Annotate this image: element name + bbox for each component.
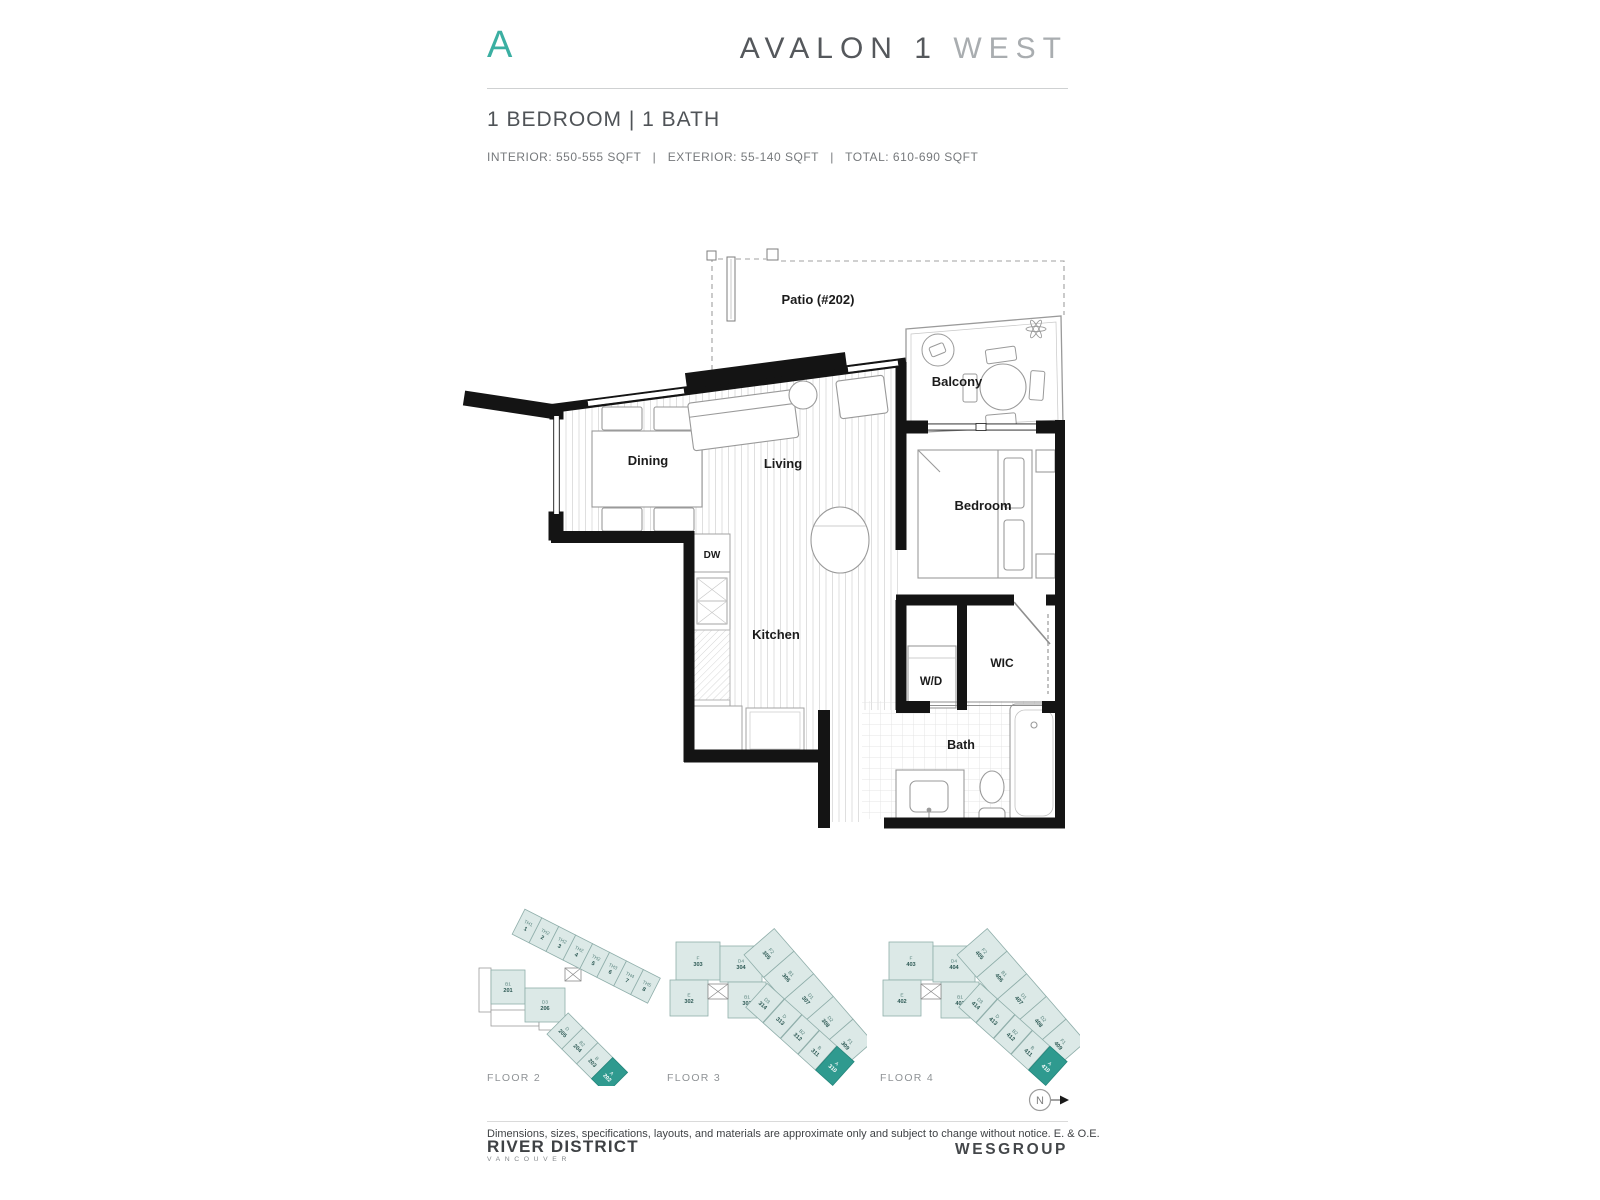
- footer-divider: [487, 1121, 1068, 1122]
- keyplan-unit-number: 304: [736, 965, 746, 971]
- patio-table-icon: [980, 364, 1026, 410]
- plan-specs: INTERIOR: 550-555 SQFT | EXTERIOR: 55-14…: [487, 150, 978, 164]
- balcony-area: [906, 316, 1063, 433]
- bath-sink-icon: [910, 781, 948, 812]
- keyplan-unit-type: D4: [951, 959, 957, 965]
- bed: [918, 450, 1055, 578]
- room-label-bedroom: Bedroom: [954, 498, 1011, 513]
- north-label: N: [1036, 1095, 1044, 1107]
- room-label-dw: DW: [704, 550, 721, 561]
- keyplan-unit-number: 404: [949, 965, 959, 971]
- keyplan-unit-type: B1: [744, 995, 750, 1001]
- room-label-wd: W/D: [920, 676, 942, 688]
- keyplan-unit-number: 303: [693, 962, 702, 968]
- keyplan-unit-type: F: [910, 956, 913, 962]
- toilet-icon: [980, 771, 1004, 803]
- keyplan-unit-type: E: [900, 993, 903, 999]
- armchair: [836, 375, 889, 419]
- keyplan-floor-2: B1201D3206TH11TH22TH23TH24TH25TH36TH47TH…: [477, 906, 682, 1086]
- patio-post: [767, 249, 778, 260]
- room-label-bath: Bath: [947, 738, 975, 752]
- keyplan-unit-type: F: [697, 956, 700, 962]
- keyplan-unit-number: 201: [503, 988, 512, 994]
- keyplan-lobby: [479, 968, 491, 1012]
- keyplan-floor-4: F403D4404E402B1401F2405B1406D1407D2408F1…: [875, 908, 1080, 1088]
- wesgroup-logo: WESGROUP: [487, 1141, 1068, 1159]
- keyplan-unit-type: B1: [957, 995, 963, 1001]
- room-label-living: Living: [764, 456, 802, 471]
- keyplan-unit-number: 206: [540, 1006, 549, 1012]
- room-label-dining: Dining: [628, 453, 668, 468]
- floorplan-page: { "header": { "plan_letter": "A", "title…: [0, 0, 1600, 1200]
- header-divider: [487, 88, 1068, 89]
- room-label-wic: WIC: [990, 656, 1014, 670]
- north-arrowhead: [1060, 1096, 1069, 1105]
- room-label-balcony: Balcony: [932, 374, 983, 389]
- keyplan-unit-number: 402: [897, 999, 906, 1005]
- fridge-icon: [746, 708, 804, 753]
- patio-screen-wall: [727, 257, 735, 321]
- floorplan-svg: Patio (#202) Balcony Dining Living Bedro…: [455, 233, 1075, 833]
- plan-subtitle: 1 BEDROOM | 1 BATH: [487, 108, 720, 132]
- keyplan-unit-type: D3: [542, 1000, 548, 1006]
- keyplan-unit-number: 302: [684, 999, 693, 1005]
- north-arrow: N: [1026, 1086, 1076, 1114]
- stove-icon: [694, 630, 730, 700]
- side-table: [789, 381, 817, 409]
- keyplan-unit-type: B1: [505, 982, 511, 988]
- keyplan-unit-type: E: [687, 993, 690, 999]
- bbq-icon: [922, 334, 954, 366]
- page-title: AVALON 1 WEST: [487, 34, 1068, 64]
- patio-chair-icon: [1029, 371, 1045, 401]
- title-main: AVALON 1: [740, 32, 938, 65]
- lounge-chair: [811, 507, 869, 573]
- keyplan-unit-number: 403: [906, 962, 915, 968]
- room-label-patio: Patio (#202): [782, 292, 855, 307]
- wic-door-leaf: [1014, 602, 1050, 644]
- patio-post: [707, 251, 716, 260]
- keyplan-label-floor-4: FLOOR 4: [880, 1072, 934, 1084]
- room-label-kitchen: Kitchen: [752, 627, 800, 642]
- keyplan-label-floor-3: FLOOR 3: [667, 1072, 721, 1084]
- keyplan-floor-3: F303D4304E302B1301F2305B1306D1307D2308F1…: [662, 908, 867, 1088]
- keyplan-unit-type: D4: [738, 959, 744, 965]
- title-accent: WEST: [953, 32, 1068, 65]
- keyplan-label-floor-2: FLOOR 2: [487, 1072, 541, 1084]
- floorplan: Patio (#202) Balcony Dining Living Bedro…: [455, 233, 1075, 833]
